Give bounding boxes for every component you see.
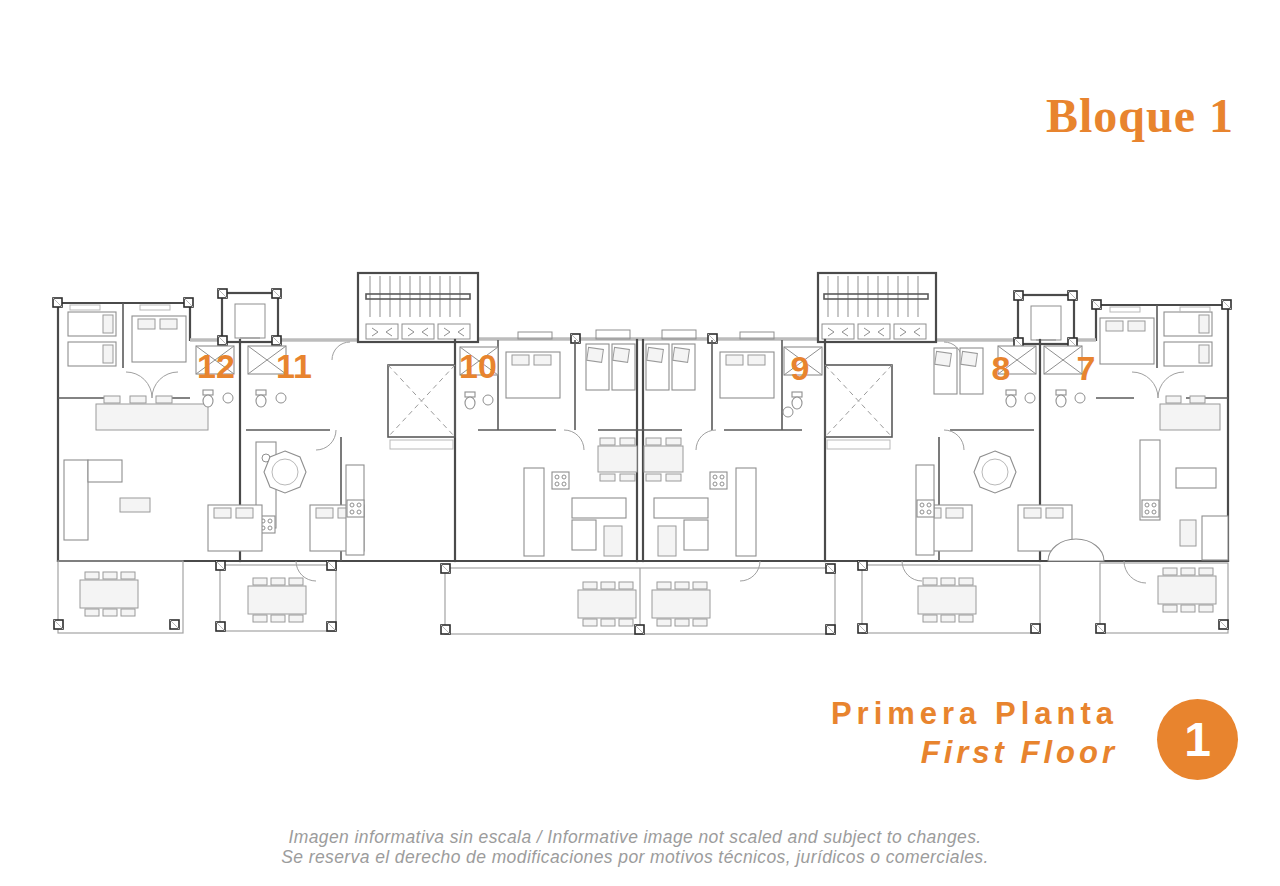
disclaimer-line-2: Se reserva el derecho de modificaciones …: [0, 847, 1270, 867]
unit-number-10: 10: [459, 347, 497, 385]
unit-number-11: 11: [276, 347, 312, 385]
floor-title-spanish: Primera Planta: [618, 696, 1118, 732]
terraces: [54, 561, 1228, 634]
unit-number-7: 7: [1077, 349, 1096, 387]
unit-number-12: 12: [197, 347, 235, 385]
floor-title-english: First Floor: [618, 735, 1118, 771]
disclaimer: Imagen informativa sin escala / Informat…: [0, 827, 1270, 867]
disclaimer-line-1: Imagen informativa sin escala / Informat…: [0, 827, 1270, 847]
stair-elevator-cores: [218, 273, 1077, 347]
unit-number-9: 9: [791, 349, 810, 387]
page: { "theme": { "accent": "#E8842E", "discl…: [0, 0, 1280, 886]
floor-number: 1: [1184, 712, 1211, 767]
floor-number-badge: 1: [1157, 699, 1238, 780]
unit-number-8: 8: [992, 349, 1011, 387]
